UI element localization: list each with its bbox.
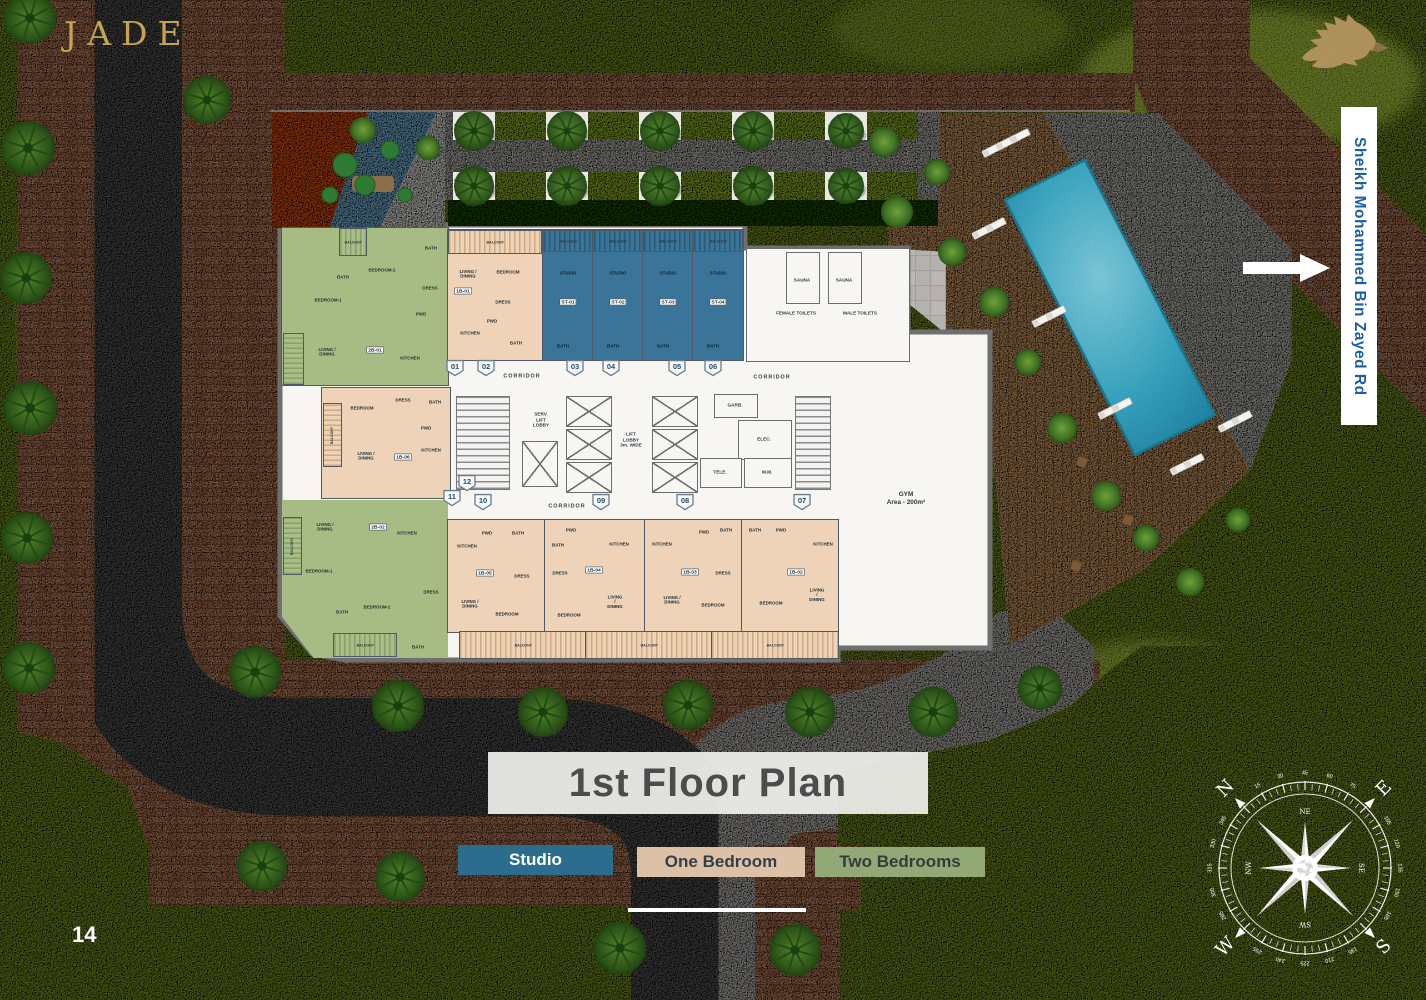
balcony: BALCONY — [340, 229, 366, 255]
room-label: BEDROOM-1 — [305, 569, 332, 574]
unit-1b-02: BATHPWDKITCHENBEDROOMLIVING / DINING1B-0… — [742, 520, 838, 632]
facility-label: W.M. — [762, 469, 773, 475]
svg-text:12: 12 — [463, 477, 471, 486]
svg-text:05: 05 — [673, 362, 681, 371]
facility-label: TELE. — [713, 469, 726, 475]
room-label: KITCHEN — [397, 531, 417, 536]
room-label: LIVING / DINING — [318, 347, 335, 357]
unit-number-2b-02: 2B-02 — [370, 523, 387, 530]
unit-marker-05: 05 — [668, 360, 686, 382]
room-label: PWD — [416, 312, 426, 317]
elevator-shaft — [566, 396, 612, 427]
elevator-shaft — [566, 429, 612, 460]
unit-marker-02: 02 — [477, 360, 495, 382]
facility-label: LIFT LOBBY 3m. WIDE — [620, 432, 641, 449]
room-label: BEDROOM — [759, 600, 782, 605]
svg-text:10: 10 — [479, 496, 487, 505]
room-label: KITCHEN — [400, 356, 420, 361]
unit-number-1b-06: 1B-06 — [394, 454, 411, 461]
room-label: LIVING / DINING — [664, 594, 681, 604]
room-label: DRESS — [514, 573, 529, 578]
balcony: BALCONY — [449, 231, 541, 253]
balcony — [284, 334, 303, 384]
room-label: BATH — [707, 343, 719, 348]
balcony: BALCONY — [594, 231, 642, 251]
balcony: BALCONY — [460, 632, 586, 658]
unit-marker-07: 07 — [793, 494, 811, 516]
balcony: BALCONY — [334, 634, 396, 656]
room-label: BATH — [336, 610, 348, 615]
unit-marker-08: 08 — [676, 494, 694, 516]
unit-marker-04: 04 — [602, 360, 620, 382]
room-label: KITCHEN — [460, 330, 480, 335]
unit-number-1b-02: 1B-02 — [787, 568, 804, 575]
corridor-label: CORRIDOR — [503, 373, 540, 380]
room-label: PWD — [487, 318, 497, 323]
room-label: LIVING / DINING — [607, 594, 624, 609]
unit-number-1b-05: 1B-05 — [476, 569, 493, 576]
room-label: DRESS — [496, 299, 511, 304]
balcony-label: BALCONY — [640, 643, 657, 647]
svg-text:08: 08 — [681, 496, 689, 505]
unit-number-st-02: ST-02 — [610, 298, 627, 305]
room-label: LIVING / DINING — [459, 269, 476, 279]
room-label: BEDROOM — [558, 613, 581, 618]
balcony-label: BALCONY — [559, 239, 576, 243]
room-label: BEDROOM — [496, 269, 519, 274]
balcony: BALCONY — [644, 231, 692, 251]
room-label: STUDIO — [560, 270, 577, 275]
facility-label: GARB. — [728, 402, 743, 408]
unit-marker-11: 11 — [443, 490, 461, 512]
balcony: BALCONY — [324, 404, 341, 466]
balcony-label: BALCONY — [291, 537, 295, 554]
room-label: BEDROOM — [701, 603, 724, 608]
room-label: PWD — [421, 425, 431, 430]
room-label: BATH — [721, 528, 733, 533]
room-label: BEDROOM-1 — [315, 298, 342, 303]
balcony: BALCONY — [544, 231, 592, 251]
room-label: STUDIO — [610, 270, 627, 275]
room-label: BATH — [425, 246, 437, 251]
balcony: BALCONY — [694, 231, 742, 251]
room-label: BATH — [512, 531, 524, 536]
balcony-label: BALCONY — [659, 239, 676, 243]
room-label: PWD — [699, 530, 709, 535]
room-label: BATH — [412, 644, 424, 649]
svg-text:01: 01 — [451, 362, 459, 371]
unit-number-st-01: ST-01 — [560, 298, 577, 305]
unit-number-st-03: ST-03 — [660, 298, 677, 305]
facility-label: FEMALE TOILETS — [776, 310, 816, 316]
svg-text:06: 06 — [709, 362, 717, 371]
room-label: KITCHEN — [609, 541, 629, 546]
room-label: BATH — [657, 343, 669, 348]
facility-label: SERV. LIFT LOBBY — [533, 412, 549, 429]
room-label: DRESS — [552, 570, 567, 575]
floor-plan-page: { "branding": {"logo_text": "JADE", "pag… — [0, 0, 1426, 1000]
facility-label: ELEC. — [757, 436, 771, 442]
unit-marker-06: 06 — [704, 360, 722, 382]
room-label: BEDROOM-2 — [363, 605, 390, 610]
svg-text:02: 02 — [482, 362, 490, 371]
room-label: PWD — [776, 528, 786, 533]
unit-number-1b-01: 1B-01 — [455, 288, 472, 295]
balcony-label: BALCONY — [356, 643, 373, 647]
elevator-shaft — [566, 462, 612, 493]
unit-1b-06: BEDROOMDRESSBATHPWDLIVING / DININGKITCHE… — [322, 388, 450, 498]
room-label: BEDROOM-2 — [368, 268, 395, 273]
building-floor-plan: BEDROOM-1BEDROOM-2BATHBATHDRESSPWDLIVING… — [0, 0, 1426, 1000]
unit-marker-03: 03 — [566, 360, 584, 382]
room-label: DRESS — [422, 285, 437, 290]
room-label: BATH — [552, 542, 564, 547]
unit-number-st-04: ST-04 — [710, 298, 727, 305]
facility-label: SAUNA — [794, 277, 811, 283]
unit-number-2b-01: 2B-01 — [366, 347, 383, 354]
svg-text:11: 11 — [448, 492, 456, 501]
balcony-label: BALCONY — [486, 240, 503, 244]
balcony-label: BALCONY — [609, 239, 626, 243]
unit-number-1b-04: 1B-04 — [585, 567, 602, 574]
room-label: LIVING / DINING — [317, 522, 334, 532]
unit-number-1b-03: 1B-03 — [681, 568, 698, 575]
room-label: DRESS — [715, 570, 730, 575]
balcony-label: BALCONY — [344, 240, 361, 244]
balcony-label: BALCONY — [331, 426, 335, 443]
room-label: BATH — [429, 400, 441, 405]
corridor-label: CORRIDOR — [548, 503, 585, 510]
room-label: PWD — [566, 528, 576, 533]
svg-text:07: 07 — [798, 496, 806, 505]
room-label: BATH — [749, 528, 761, 533]
room-label: LIVING / DINING — [462, 599, 479, 609]
room-label: STUDIO — [710, 270, 727, 275]
elevator-shaft — [652, 429, 698, 460]
elevator-shaft — [522, 441, 558, 487]
svg-text:04: 04 — [607, 362, 616, 371]
room-label: STUDIO — [660, 270, 677, 275]
balcony: BALCONY — [586, 632, 712, 658]
room-label: BEDROOM — [496, 612, 519, 617]
unit-marker-01: 01 — [446, 360, 464, 382]
elevator-shaft — [652, 396, 698, 427]
svg-text:09: 09 — [597, 496, 605, 505]
unit-marker-10: 10 — [474, 494, 492, 516]
facility-label: MALE TOILETS — [843, 310, 877, 316]
staircase — [795, 396, 831, 490]
room-label: BATH — [607, 343, 619, 348]
balcony-label: BALCONY — [709, 239, 726, 243]
balcony: BALCONY — [284, 518, 301, 574]
unit-1b-03: KITCHENPWDBATHDRESSLIVING / DININGBEDROO… — [645, 520, 742, 632]
room-label: DRESS — [395, 398, 410, 403]
svg-text:03: 03 — [571, 362, 579, 371]
room-label: PWD — [482, 531, 492, 536]
balcony-label: BALCONY — [514, 643, 531, 647]
room-label: BATH — [510, 341, 522, 346]
room-label: KITCHEN — [421, 447, 441, 452]
room-label: LIVING / DINING — [357, 451, 374, 461]
room-label: BEDROOM — [350, 405, 373, 410]
unit-1b-05: KITCHENPWDBATHDRESSLIVING / DININGBEDROO… — [448, 520, 545, 632]
room-label: BATH — [557, 343, 569, 348]
room-label: DRESS — [424, 589, 439, 594]
corridor-label: CORRIDOR — [753, 374, 790, 381]
room-label: LIVING / DINING — [809, 587, 824, 602]
facility-label: GYM Area - 200m² — [887, 490, 925, 505]
balcony: BALCONY — [712, 632, 838, 658]
elevator-shaft — [652, 462, 698, 493]
unit-1b-04: BATHPWDDRESSKITCHENLIVING / DININGBEDROO… — [545, 520, 645, 632]
balcony-label: BALCONY — [766, 643, 783, 647]
unit-marker-09: 09 — [592, 494, 610, 516]
room-label: KITCHEN — [653, 541, 673, 546]
facility-label: SAUNA — [836, 277, 853, 283]
room-label: KITCHEN — [813, 541, 833, 546]
room-label: BATH — [337, 274, 349, 279]
room-label: KITCHEN — [458, 543, 478, 548]
